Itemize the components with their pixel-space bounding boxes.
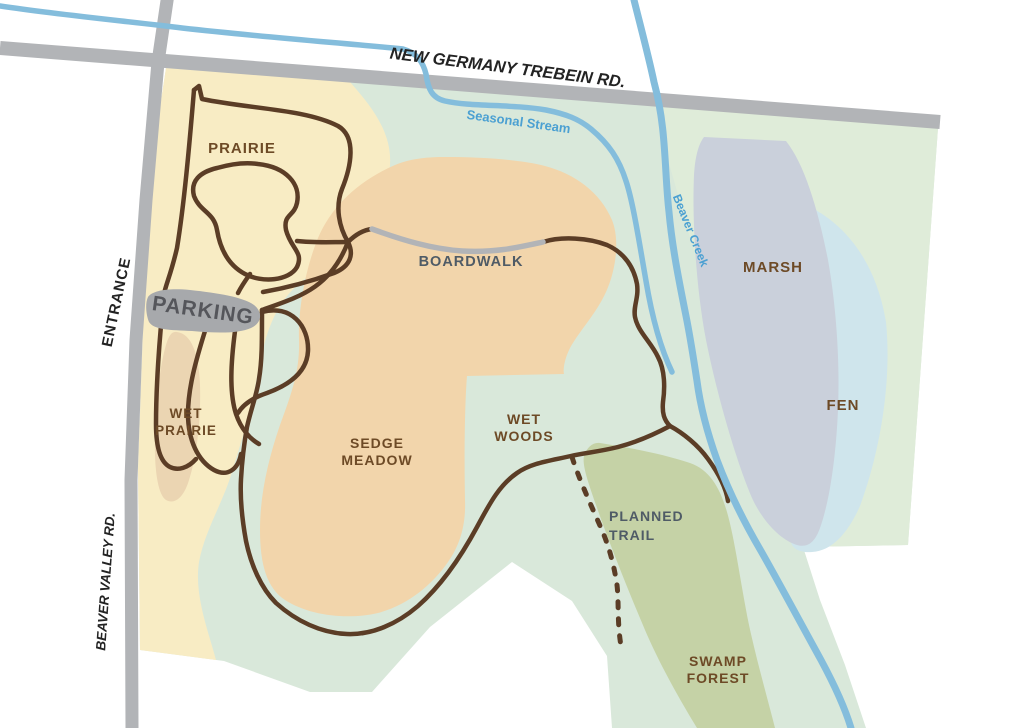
label-wet-woods-2: WOODS — [494, 428, 553, 444]
label-wet-woods-1: WET — [507, 411, 541, 427]
label-beaver-valley-rd: BEAVER VALLEY RD. — [93, 512, 118, 651]
label-wet-prairie-1: WET — [170, 406, 203, 421]
label-entrance: ENTRANCE — [99, 256, 135, 349]
label-boardwalk: BOARDWALK — [419, 254, 524, 270]
label-swamp-forest-1: SWAMP — [689, 653, 747, 669]
trail-connector-inner-outer — [297, 241, 348, 242]
label-planned-trail-2: TRAIL — [609, 527, 655, 543]
label-wet-prairie-2: PRAIRIE — [155, 423, 217, 438]
label-prairie: PRAIRIE — [208, 140, 276, 157]
label-sedge-meadow-2: MEADOW — [341, 452, 412, 468]
label-sedge-meadow-1: SEDGE — [350, 435, 404, 451]
trail-map: PRAIRIE WET PRAIRIE SEDGE MEADOW WET WOO… — [0, 0, 1024, 728]
label-marsh: MARSH — [743, 259, 803, 276]
label-fen: FEN — [827, 397, 860, 414]
label-swamp-forest-2: FOREST — [687, 670, 750, 686]
label-planned-trail-1: PLANNED — [609, 508, 684, 524]
